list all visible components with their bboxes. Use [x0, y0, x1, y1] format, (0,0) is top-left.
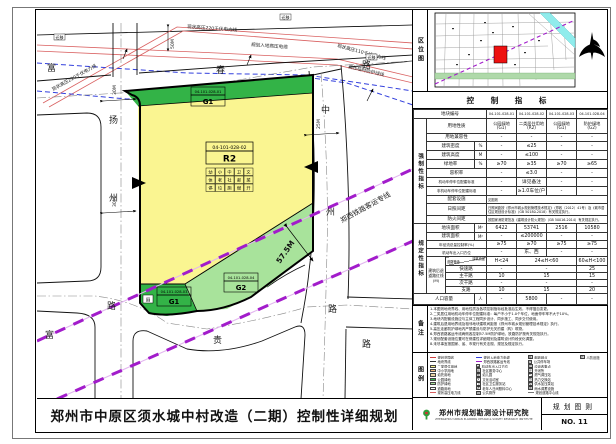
- cell-value-line: (G2): [577, 126, 607, 131]
- svg-text:G2: G2: [236, 284, 247, 292]
- legend-swatch-fill-icon: [430, 365, 436, 368]
- row-label: 日照间距: [427, 204, 487, 216]
- cell-value: -: [577, 187, 608, 196]
- notes-body: 1.本图则地块界线、用地性质及各项控制指标经批准后生效，不得擅自变更。2.二类居…: [428, 306, 607, 352]
- cell-value: -: [547, 134, 577, 142]
- road-name-char-left: 州: [109, 193, 118, 204]
- road-class-label: 主干路: [446, 273, 487, 280]
- row-label: 容积率: [427, 169, 487, 178]
- legend-swatch-dash-icon: [476, 357, 482, 358]
- cell-value: 15: [517, 273, 577, 280]
- legend-item: 厕公共厕所: [475, 391, 527, 395]
- road-name-char-left: 路: [107, 300, 116, 312]
- institute-logo-icon: [421, 409, 432, 420]
- corner-bottom: 道路等级: [447, 261, 460, 265]
- road-name-char-right: 州: [326, 207, 335, 218]
- institute-cell: 郑州市规划勘测设计研究院 ZHENGZHOU URBAN PLANNING DE…: [413, 398, 542, 430]
- svg-text:G1: G1: [203, 98, 214, 106]
- indicators-table-section: 地块编号04-101-028-0104-101-028-0204-101-028…: [413, 109, 607, 306]
- cell-value: -: [487, 266, 517, 273]
- notes-label: 备注: [413, 306, 428, 352]
- road-class-label: 支路: [446, 287, 487, 294]
- cell-value: 53741: [517, 224, 547, 233]
- row-label: 建筑密度: [427, 142, 475, 151]
- cell-value: -: [577, 294, 608, 305]
- toilet-icon: 厕: [146, 298, 151, 304]
- cell-value: -: [517, 266, 577, 273]
- cell-value: ≤100: [517, 151, 547, 160]
- road-name-char-top: 路: [362, 59, 371, 71]
- row-label: 机动车停车位配建标准: [427, 178, 487, 187]
- row-label: 地块编号: [414, 110, 487, 119]
- corner-top: 建筑高度: [472, 258, 485, 262]
- plan-sheet: 57.5M 30M 30M 25M 50M 现状高压220千伏电力线 现状高压2…: [0, 0, 616, 444]
- cell-value: ≥70: [487, 160, 517, 169]
- cell-value: 10: [487, 287, 517, 294]
- cell-value: ≥1.0车位/户: [517, 187, 547, 196]
- setback-corner-cell: 建筑高度道路等级: [446, 257, 487, 266]
- cell-value: -: [487, 187, 517, 196]
- svg-text:04-101-028-01: 04-101-028-01: [195, 90, 222, 94]
- legend-item: 规划道路中心线: [527, 391, 579, 395]
- cell-value: ≤3.0: [517, 169, 547, 178]
- cell-value: -: [547, 178, 577, 187]
- cell-value: 6422: [487, 224, 517, 233]
- road-name-char-top: 富: [47, 62, 56, 74]
- cell-value-line: (R2): [517, 126, 546, 131]
- svg-text:现状高压220千伏电力线: 现状高压220千伏电力线: [51, 62, 99, 93]
- zoning-map: 57.5M 30M 30M 25M 50M 现状高压220千伏电力线 现状高压2…: [37, 11, 412, 398]
- svg-text:迁移: 迁移: [368, 54, 376, 60]
- setback-col-header: 24≤H<60: [517, 257, 577, 266]
- cell-value: -: [577, 249, 608, 257]
- cell-value: 10580: [577, 224, 608, 233]
- cell-value: -: [517, 134, 547, 142]
- setback-col-header: 60≤H<100: [577, 257, 608, 266]
- section-label-mandatory: 强制性指标: [414, 119, 427, 224]
- parcel-code: 04-101-028-04: [577, 110, 608, 119]
- row-label: 绿地率: [427, 160, 475, 169]
- legend-item-label: 公共厕所: [482, 391, 495, 395]
- cell-value: 防护绿地(G2): [577, 119, 608, 134]
- sheet-number: NO. 11: [542, 415, 607, 431]
- road-name-char-top: 春: [216, 64, 225, 76]
- indicator-table: 地块编号04-101-028-0104-101-028-0204-101-028…: [413, 109, 608, 305]
- note-line: 8.未尽事宜按国家、省、市现行有关法规、规范及规定执行。: [430, 342, 605, 347]
- row-label: 防火间距: [427, 216, 487, 224]
- cell-value: -: [487, 294, 517, 305]
- row-label: 建筑高度: [427, 151, 475, 160]
- parcel-code: 04-101-028-01: [487, 110, 517, 119]
- cell-value: -: [577, 134, 608, 142]
- road-name-char-left: 扬: [109, 114, 118, 126]
- merged-value: 按国家消防规范及《建筑设计防火规范》（GB 50016-2014）有关规定执行。: [487, 216, 608, 224]
- location-section-label: 区位图: [413, 10, 428, 91]
- svg-text:G1: G1: [169, 298, 180, 306]
- cell-value: 10: [487, 273, 517, 280]
- cell-value: ≥70: [547, 160, 577, 169]
- svg-text:04-101-028-02: 04-101-028-02: [212, 145, 246, 151]
- legend-label: 图例: [413, 353, 428, 397]
- merged-value: 见图则: [487, 196, 608, 204]
- cell-value: ≥65: [577, 160, 608, 169]
- legend-swatch-fill-icon: [430, 378, 436, 381]
- row-label: 配套设施: [427, 196, 487, 204]
- legend-column: 防人防设施: [579, 355, 607, 395]
- cell-value: 东、西: [517, 249, 547, 257]
- road-name-char-bottom: 富: [45, 329, 54, 341]
- legend-swatch-fill-icon: [430, 382, 436, 385]
- cell-value: -: [547, 294, 577, 305]
- cell-value: -: [547, 249, 577, 257]
- legend-swatch-dash-icon: [430, 357, 436, 358]
- cell-value: 5800: [517, 294, 547, 305]
- facility-icon: 老: [218, 177, 222, 183]
- indicators-title: 控 制 指 标: [413, 92, 607, 109]
- svg-text:50M: 50M: [170, 39, 176, 49]
- cell-value: 25: [577, 266, 608, 273]
- svg-text:R2: R2: [223, 155, 236, 165]
- facility-icon: 停: [208, 185, 212, 192]
- location-site-marker: [494, 46, 507, 63]
- institute-name-en: ZHENGZHOU URBAN PLANNING DESIGN & SURVEY…: [435, 418, 532, 421]
- row-label: 建筑面积: [427, 233, 475, 241]
- cell-value: -: [487, 134, 517, 142]
- row-label: 用地兼容性: [427, 134, 487, 142]
- cell-value: 20: [577, 287, 608, 294]
- legend-item: 防人防设施: [579, 355, 607, 360]
- legend-swatch-fill-icon: [430, 369, 436, 372]
- cell-value: ≥75: [577, 241, 608, 249]
- row-unit: M: [475, 151, 487, 160]
- svg-text:规划入地高压电缆: 规划入地高压电缆: [251, 41, 289, 51]
- cell-value: -: [577, 169, 608, 178]
- svg-text:迁移: 迁移: [282, 14, 290, 20]
- parcel-fills: [125, 75, 313, 316]
- parcel-code: 04-101-028-02: [517, 110, 547, 119]
- road-name-char-bottom: 路: [362, 338, 371, 350]
- cell-value: -: [577, 151, 608, 160]
- legend-swatch-fill-icon: [430, 387, 436, 390]
- cell-value: 15: [517, 287, 577, 294]
- legend-swatch-line-icon: [430, 392, 436, 393]
- legend-swatch-box-icon: 厕: [476, 391, 481, 395]
- cell-value-line: (G1): [487, 126, 516, 131]
- parcel-code: 04-101-028-03: [547, 110, 577, 119]
- facility-icon: 幼: [208, 169, 212, 176]
- legend-item-label: 人防设施: [586, 355, 599, 360]
- row-label: 机动车出入口方位: [427, 249, 487, 257]
- svg-text:04-101-028-03: 04-101-028-03: [161, 290, 188, 294]
- section-label-prescriptive: 规定性指标: [414, 224, 427, 294]
- sheet-title: 郑州市中原区须水城中村改造（二期）控制性详细规划: [37, 398, 412, 431]
- facility-icon: 社: [227, 177, 231, 184]
- notes-section: 备注 1.本图则地块界线、用地性质及各项控制指标经批准后生效，不得擅自变更。2.…: [413, 306, 607, 353]
- cell-value: 2516: [547, 224, 577, 233]
- right-panel: 区位图: [412, 10, 607, 430]
- road-class-label: 次干路: [446, 280, 487, 287]
- row-unit: M²: [475, 224, 487, 233]
- railway-label: 郑西铁路客运专线: [339, 190, 392, 225]
- facility-icon: 卫: [237, 170, 241, 175]
- cell-value: -: [577, 178, 608, 187]
- titleblock-section: 郑州市规划勘测设计研究院 ZHENGZHOU URBAN PLANNING DE…: [413, 398, 607, 430]
- setback-col-header: H<24: [487, 257, 517, 266]
- cell-value: -: [547, 233, 577, 241]
- cell-value: -: [487, 151, 517, 160]
- road-class-label: 快速路: [446, 266, 487, 273]
- cell-value: ≤200000: [517, 233, 547, 241]
- row-unit: M²: [475, 233, 487, 241]
- cell-value: -: [577, 280, 608, 287]
- legend-item: 现状高压电力线: [429, 391, 475, 395]
- row-unit: %: [475, 160, 487, 169]
- legend-swatch-box-icon: 防: [580, 355, 585, 359]
- cell-value: -: [517, 280, 577, 287]
- road-name-char-bottom: 贵: [213, 334, 222, 346]
- cell-value: ≥70: [517, 241, 547, 249]
- legend-body: 规划范围线地块界线二类居住用地中小学用地幼托用地公园绿地防护绿地道路用地现状高压…: [428, 353, 608, 397]
- sheet-type-label: 规划图则: [542, 398, 607, 415]
- cell-value: -: [547, 151, 577, 160]
- legend-swatch-line-icon: [430, 361, 436, 362]
- legend-column: 邮邮政网点P公共停车场垃垃圾收集点开开闭所气燃气调压站热热力交换站泵供水加压泵站…: [527, 355, 579, 395]
- cell-value: ≤25: [517, 142, 547, 151]
- setback-label: 建筑后退道路红线(M): [427, 257, 446, 294]
- location-section: 区位图: [413, 10, 607, 92]
- facility-icon: 邮: [237, 177, 241, 184]
- svg-text:04-101-028-04: 04-101-028-04: [228, 276, 255, 280]
- cell-value: -: [487, 142, 517, 151]
- cell-value: -: [547, 169, 577, 178]
- north-arrow-icon: [579, 32, 605, 60]
- row-unit: %: [475, 142, 487, 151]
- cell-value: -: [487, 280, 517, 287]
- row-label: 非机动车停车位配建标准: [427, 187, 487, 196]
- cell-value: 公园绿地(G1): [547, 119, 577, 134]
- road-name-char-right: 中: [321, 104, 330, 116]
- svg-text:迁移: 迁移: [56, 34, 64, 40]
- cell-value-line: (G1): [547, 126, 576, 131]
- row-label: 用地性质: [427, 119, 487, 134]
- merged-value: 日照间距按《郑州市城乡规划管理技术规定》（郑政〔2012〕41号）及《城市居住区…: [487, 204, 608, 216]
- cell-value: -: [487, 249, 517, 257]
- svg-text:30M: 30M: [112, 85, 118, 95]
- legend-item-label: 现状高压电力线: [438, 391, 461, 395]
- cell-value: -: [577, 142, 608, 151]
- cell-value: -: [487, 178, 517, 187]
- row-label: 人口容量: [414, 294, 475, 305]
- legend-swatch-dash-icon: [476, 361, 482, 362]
- row-label: 地块面积: [427, 224, 475, 233]
- cell-value: -: [487, 233, 517, 241]
- cell-value: 15: [577, 273, 608, 280]
- legend-column: 规划范围线地块界线二类居住用地中小学用地幼托用地公园绿地防护绿地道路用地现状高压…: [429, 355, 475, 395]
- cell-value: -: [487, 169, 517, 178]
- institute-name: 郑州市规划勘测设计研究院: [435, 408, 532, 418]
- legend-swatch-dashdot-icon: [528, 392, 534, 393]
- location-map: [428, 10, 607, 91]
- legend-section: 图例 规划范围线地块界线二类居住用地中小学用地幼托用地公园绿地防护绿地道路用地现…: [413, 353, 607, 398]
- legend-column: 规划入地电力电缆郑西铁路客运专线▲机动车出入口方位服社区服务中心幼幼儿园文文化活…: [475, 355, 527, 395]
- cell-value: 二类居住用地(R2): [517, 119, 547, 134]
- cell-value: -: [577, 233, 608, 241]
- cell-value: 公园绿地(G1): [487, 119, 517, 134]
- cell-value: -: [547, 142, 577, 151]
- road-name-char-right: 路: [328, 303, 337, 315]
- cell-value: ≥35: [517, 160, 547, 169]
- row-label: 年径流总量控制率(%): [427, 241, 487, 249]
- legend-item-label: 规划道路中心线: [536, 391, 559, 395]
- cell-value: 详见备注: [517, 178, 547, 187]
- svg-text:25M: 25M: [316, 119, 322, 129]
- row-unit: 人: [475, 294, 487, 305]
- facility-icon: 中: [227, 169, 231, 176]
- cell-value: ≥75: [487, 241, 517, 249]
- cell-value: ≥75: [547, 241, 577, 249]
- cell-value: -: [547, 187, 577, 196]
- legend-swatch-fill-icon: [430, 373, 436, 376]
